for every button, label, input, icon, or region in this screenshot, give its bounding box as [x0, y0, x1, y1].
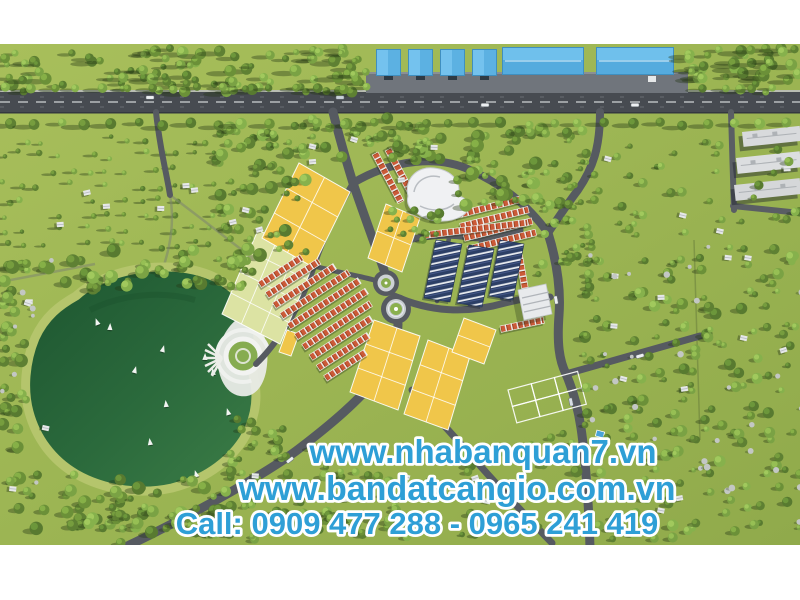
tree-highlight: [505, 146, 511, 152]
car: [336, 96, 344, 99]
tree-highlight: [734, 429, 740, 435]
tree-highlight: [764, 470, 768, 474]
tree-highlight: [271, 447, 276, 452]
tree-highlight: [745, 261, 749, 265]
tree-highlight: [542, 130, 547, 135]
tree-highlight: [719, 217, 723, 221]
tree-highlight: [600, 118, 605, 123]
tree-highlight: [752, 374, 758, 380]
tree-highlight: [37, 150, 41, 154]
tree-highlight: [264, 129, 269, 134]
rock: [30, 306, 36, 312]
tree-highlight: [265, 119, 271, 125]
tree-highlight: [105, 211, 108, 214]
tree-highlight: [18, 390, 23, 395]
tree-highlight: [578, 200, 581, 203]
tree-highlight: [193, 150, 195, 152]
tree-highlight: [52, 85, 57, 90]
rock: [12, 372, 17, 377]
tree-highlight: [173, 151, 176, 154]
tree-highlight: [764, 408, 770, 414]
tree-highlight: [427, 212, 432, 217]
tree-highlight: [397, 121, 402, 126]
tree-highlight: [253, 164, 257, 168]
rock: [0, 389, 4, 393]
tree-highlight: [755, 119, 761, 125]
tree-highlight: [133, 482, 140, 489]
tree-highlight: [583, 409, 589, 415]
tree-highlight: [707, 489, 711, 493]
tree-highlight: [124, 230, 127, 233]
tree-highlight: [743, 483, 747, 487]
tree-highlight: [723, 509, 728, 514]
rock: [49, 258, 54, 263]
tree-highlight: [774, 146, 779, 151]
tree-highlight: [482, 173, 486, 177]
tree-highlight: [149, 84, 154, 89]
tree-highlight: [635, 288, 641, 294]
tree-highlight: [689, 68, 693, 72]
tree-highlight: [420, 237, 424, 241]
tree-highlight: [215, 190, 222, 197]
tree-highlight: [763, 303, 767, 307]
tree-highlight: [783, 216, 788, 221]
tree-highlight: [667, 189, 672, 194]
tree-highlight: [617, 221, 620, 224]
tree-highlight: [314, 84, 319, 89]
tree-highlight: [190, 224, 193, 227]
tree-highlight: [467, 168, 475, 176]
tree-highlight: [40, 505, 46, 511]
tree-highlight: [110, 239, 113, 242]
tree-highlight: [337, 152, 343, 158]
tree-highlight: [692, 519, 697, 524]
tree-highlight: [581, 160, 584, 163]
tree-highlight: [692, 468, 695, 471]
tree-highlight: [650, 301, 656, 307]
tree-highlight: [300, 175, 307, 182]
tree-highlight: [543, 207, 547, 211]
tree-highlight: [341, 120, 346, 125]
tree-highlight: [287, 140, 290, 143]
tree-highlight: [59, 119, 64, 124]
tree-highlight: [751, 195, 754, 198]
tree-highlight: [162, 55, 166, 59]
tree-highlight: [270, 131, 274, 135]
tree-highlight: [723, 85, 727, 89]
tree-highlight: [771, 170, 775, 174]
rock: [704, 464, 711, 471]
tree-highlight: [285, 241, 290, 246]
tree-highlight: [206, 242, 209, 245]
tree-highlight: [6, 477, 11, 482]
tree-highlight: [261, 206, 266, 211]
tree-highlight: [212, 151, 214, 153]
tree-highlight: [639, 179, 644, 184]
tree-highlight: [187, 63, 191, 67]
tree-highlight: [678, 188, 683, 193]
tree-highlight: [738, 438, 744, 444]
tree-highlight: [482, 199, 486, 203]
tree-highlight: [123, 197, 126, 200]
tree-highlight: [689, 388, 693, 392]
tree-highlight: [388, 227, 391, 230]
tree-highlight: [785, 322, 788, 325]
tree-highlight: [79, 496, 86, 503]
tree-highlight: [154, 216, 157, 219]
tree-highlight: [629, 119, 635, 125]
tree-highlight: [658, 163, 662, 167]
tree-highlight: [153, 167, 156, 170]
tree-highlight: [308, 115, 313, 120]
tree-highlight: [254, 249, 262, 257]
tree-highlight: [299, 144, 305, 150]
tree-highlight: [791, 46, 796, 51]
tree-highlight: [705, 303, 711, 309]
tree-highlight: [41, 243, 44, 246]
tree-highlight: [512, 136, 517, 141]
tree-highlight: [6, 119, 12, 125]
tree-highlight: [16, 355, 23, 362]
tree-highlight: [475, 157, 478, 160]
tree-highlight: [532, 193, 539, 200]
tree-highlight: [25, 140, 28, 143]
tree-highlight: [293, 84, 298, 89]
tree-highlight: [715, 456, 721, 462]
website-primary: www.nhabanquan7.vn: [308, 433, 656, 470]
tree-highlight: [539, 260, 544, 265]
tree-highlight: [565, 200, 570, 205]
tree-highlight: [139, 240, 142, 243]
tree-highlight: [614, 153, 618, 157]
tree-highlight: [697, 255, 701, 259]
tree-highlight: [691, 345, 697, 351]
tree-highlight: [460, 199, 467, 206]
tree-highlight: [785, 363, 788, 366]
tree-highlight: [704, 427, 707, 430]
tree-highlight: [412, 156, 416, 160]
tree-highlight: [624, 424, 629, 429]
tree-highlight: [624, 414, 629, 419]
tree-highlight: [426, 141, 430, 145]
tree-highlight: [68, 520, 74, 526]
tree-highlight: [496, 118, 502, 124]
tree-highlight: [731, 527, 736, 532]
tree-highlight: [215, 275, 219, 279]
tree-highlight: [785, 158, 790, 163]
tree-highlight: [240, 184, 244, 188]
tree-highlight: [389, 130, 394, 135]
tree-highlight: [10, 307, 16, 313]
tree-highlight: [3, 292, 9, 298]
tree-highlight: [750, 521, 755, 526]
tree-highlight: [106, 271, 113, 278]
tree-highlight: [139, 66, 144, 71]
tree-highlight: [632, 365, 635, 368]
tree-highlight: [177, 61, 182, 66]
tree-highlight: [155, 266, 160, 271]
tree-highlight: [663, 320, 667, 324]
tree-highlight: [35, 68, 40, 73]
tree-highlight: [472, 131, 480, 139]
tree-highlight: [243, 86, 247, 90]
tree-highlight: [455, 191, 459, 195]
tree-highlight: [192, 77, 196, 81]
tree-highlight: [737, 304, 743, 310]
tree-highlight: [3, 154, 6, 157]
tree-highlight: [66, 485, 73, 492]
rock: [588, 253, 593, 258]
tree-highlight: [578, 166, 581, 169]
tree-highlight: [497, 189, 504, 196]
tree-highlight: [219, 83, 223, 87]
tree-highlight: [189, 245, 195, 251]
tree-highlight: [389, 207, 394, 212]
tree-highlight: [211, 213, 214, 216]
tree-highlight: [718, 421, 724, 427]
tree-highlight: [677, 480, 681, 484]
rock: [775, 373, 780, 378]
tree-highlight: [787, 342, 792, 347]
tree-highlight: [231, 265, 235, 269]
tree-highlight: [140, 74, 145, 79]
rock: [603, 352, 607, 356]
website-secondary: www.bandatcangio.com.vn: [237, 470, 675, 508]
tree-highlight: [11, 406, 18, 413]
tree-highlight: [72, 85, 76, 89]
tree-highlight: [765, 372, 769, 376]
tree-highlight: [2, 216, 5, 219]
tree-highlight: [109, 135, 112, 138]
tree-highlight: [252, 440, 256, 444]
tree-highlight: [698, 265, 703, 270]
rock: [749, 422, 755, 428]
tree-highlight: [34, 471, 39, 476]
tree-highlight: [280, 225, 287, 232]
tree-highlight: [122, 171, 125, 174]
tree-highlight: [776, 483, 781, 488]
tree-highlight: [277, 167, 282, 172]
tree-highlight: [124, 85, 128, 89]
tree-highlight: [247, 418, 252, 423]
tree-highlight: [117, 539, 122, 544]
tree-highlight: [604, 405, 608, 409]
tree-highlight: [751, 329, 755, 333]
tree-highlight: [704, 333, 710, 339]
tree-highlight: [673, 308, 677, 312]
tree-highlight: [765, 428, 771, 434]
tree-highlight: [401, 231, 405, 235]
tree-highlight: [143, 139, 146, 142]
tree-highlight: [102, 170, 104, 172]
tree-highlight: [715, 169, 718, 172]
tree-highlight: [739, 219, 742, 222]
tree-highlight: [140, 186, 143, 189]
tree-highlight: [770, 280, 774, 284]
apartment-blocks: [422, 240, 524, 309]
tree-highlight: [169, 513, 173, 517]
tree-highlight: [98, 84, 103, 89]
tree-highlight: [20, 340, 25, 345]
tree-highlight: [382, 113, 389, 120]
tree-highlight: [183, 71, 188, 76]
tree-highlight: [787, 252, 794, 259]
tree-highlight: [725, 359, 732, 366]
tree-highlight: [193, 276, 198, 281]
tree-highlight: [424, 231, 427, 234]
tree-highlight: [688, 382, 691, 385]
tree-highlight: [119, 73, 125, 79]
tree-highlight: [546, 201, 551, 206]
tree-highlight: [229, 179, 232, 182]
tree-highlight: [72, 169, 75, 172]
tree-highlight: [141, 200, 144, 203]
tree-highlight: [162, 74, 166, 78]
tree-highlight: [1, 54, 6, 59]
rock: [593, 385, 599, 391]
tree-highlight: [267, 79, 271, 83]
tree-highlight: [252, 427, 257, 432]
main-road: [0, 90, 800, 114]
tree-highlight: [103, 182, 106, 185]
tree-highlight: [274, 143, 277, 146]
tree-highlight: [108, 245, 116, 253]
tree-highlight: [677, 299, 683, 305]
tree-highlight: [71, 471, 76, 476]
tree-highlight: [585, 270, 590, 275]
tree-highlight: [413, 149, 417, 153]
tree-highlight: [790, 429, 794, 433]
tree-highlight: [114, 69, 118, 73]
tree-highlight: [20, 230, 22, 232]
rock: [664, 271, 670, 277]
tree-highlight: [88, 272, 95, 279]
tree-highlight: [109, 504, 113, 508]
tree-highlight: [12, 50, 16, 54]
tree-highlight: [6, 74, 10, 78]
tree-highlight: [21, 243, 24, 246]
tree-highlight: [321, 143, 327, 149]
tree-highlight: [188, 476, 194, 482]
tree-highlight: [618, 203, 623, 208]
tree-highlight: [294, 50, 297, 53]
tree-highlight: [153, 489, 158, 494]
tree-highlight: [363, 83, 367, 87]
tree-highlight: [673, 339, 678, 344]
tree-highlight: [303, 249, 307, 253]
tree-highlight: [133, 518, 140, 525]
tree-highlight: [158, 186, 161, 189]
tree-highlight: [155, 196, 158, 199]
tree-highlight: [412, 227, 416, 231]
tree-highlight: [678, 256, 682, 260]
tree-highlight: [682, 229, 686, 233]
tree-highlight: [85, 240, 88, 243]
tree-highlight: [671, 410, 676, 415]
tree-highlight: [237, 143, 242, 148]
tree-highlight: [2, 322, 9, 329]
tree-highlight: [247, 184, 254, 191]
tree-highlight: [352, 58, 356, 62]
rock: [706, 245, 710, 249]
tree-highlight: [638, 395, 644, 401]
tree-highlight: [51, 171, 54, 174]
tree-highlight: [23, 396, 27, 400]
tree-highlight: [228, 236, 232, 240]
tree-highlight: [371, 119, 376, 124]
advert-image: www.nhabanquan7.vn www.bandatcangio.com.…: [0, 0, 800, 600]
top-white-bar: [0, 0, 800, 44]
tree-highlight: [310, 134, 313, 137]
tree-highlight: [92, 152, 95, 155]
tree-highlight: [340, 85, 345, 90]
tree-highlight: [555, 198, 562, 205]
tree-highlight: [634, 232, 637, 235]
tree-highlight: [178, 47, 184, 53]
tree-highlight: [268, 233, 271, 236]
tree-highlight: [551, 219, 556, 224]
tree-highlight: [585, 231, 590, 236]
tree-highlight: [111, 487, 118, 494]
tree-highlight: [3, 345, 7, 349]
tree-highlight: [627, 173, 631, 177]
tree-highlight: [128, 496, 131, 499]
tree-highlight: [771, 461, 777, 467]
rock: [590, 417, 595, 422]
tree-highlight: [752, 292, 755, 295]
tree-highlight: [678, 121, 684, 127]
tree-highlight: [310, 47, 314, 51]
tree-highlight: [701, 416, 706, 421]
tree-highlight: [202, 140, 206, 144]
tree-highlight: [237, 283, 242, 288]
tree-highlight: [217, 257, 220, 260]
tree-highlight: [199, 482, 206, 489]
tree-highlight: [631, 337, 636, 342]
tree-highlight: [741, 246, 745, 250]
tree-highlight: [227, 450, 231, 454]
industrial-warehouses: [366, 47, 688, 93]
tree-highlight: [708, 327, 711, 330]
tree-highlight: [215, 46, 221, 52]
tree-highlight: [347, 63, 353, 69]
tree-highlight: [435, 209, 440, 214]
tree-highlight: [632, 221, 635, 224]
tree-highlight: [434, 232, 437, 235]
tree-highlight: [567, 253, 572, 258]
tree-highlight: [291, 122, 296, 127]
tree-highlight: [86, 54, 91, 59]
tree-highlight: [572, 205, 575, 208]
tree-highlight: [594, 316, 598, 320]
tree-highlight: [108, 157, 111, 160]
tree-highlight: [779, 388, 782, 391]
tree-highlight: [749, 402, 755, 408]
tree-highlight: [170, 86, 175, 91]
tree-highlight: [268, 429, 273, 434]
tree-highlight: [653, 419, 658, 424]
tree-highlight: [242, 267, 246, 271]
tree-highlight: [755, 181, 760, 186]
tree-highlight: [583, 383, 588, 388]
tree-highlight: [490, 170, 494, 174]
tree-highlight: [786, 60, 792, 66]
rock: [630, 355, 634, 359]
tree-highlight: [170, 165, 173, 168]
tree-highlight: [59, 81, 63, 85]
tree-highlight: [747, 46, 752, 51]
tree-highlight: [283, 56, 287, 60]
